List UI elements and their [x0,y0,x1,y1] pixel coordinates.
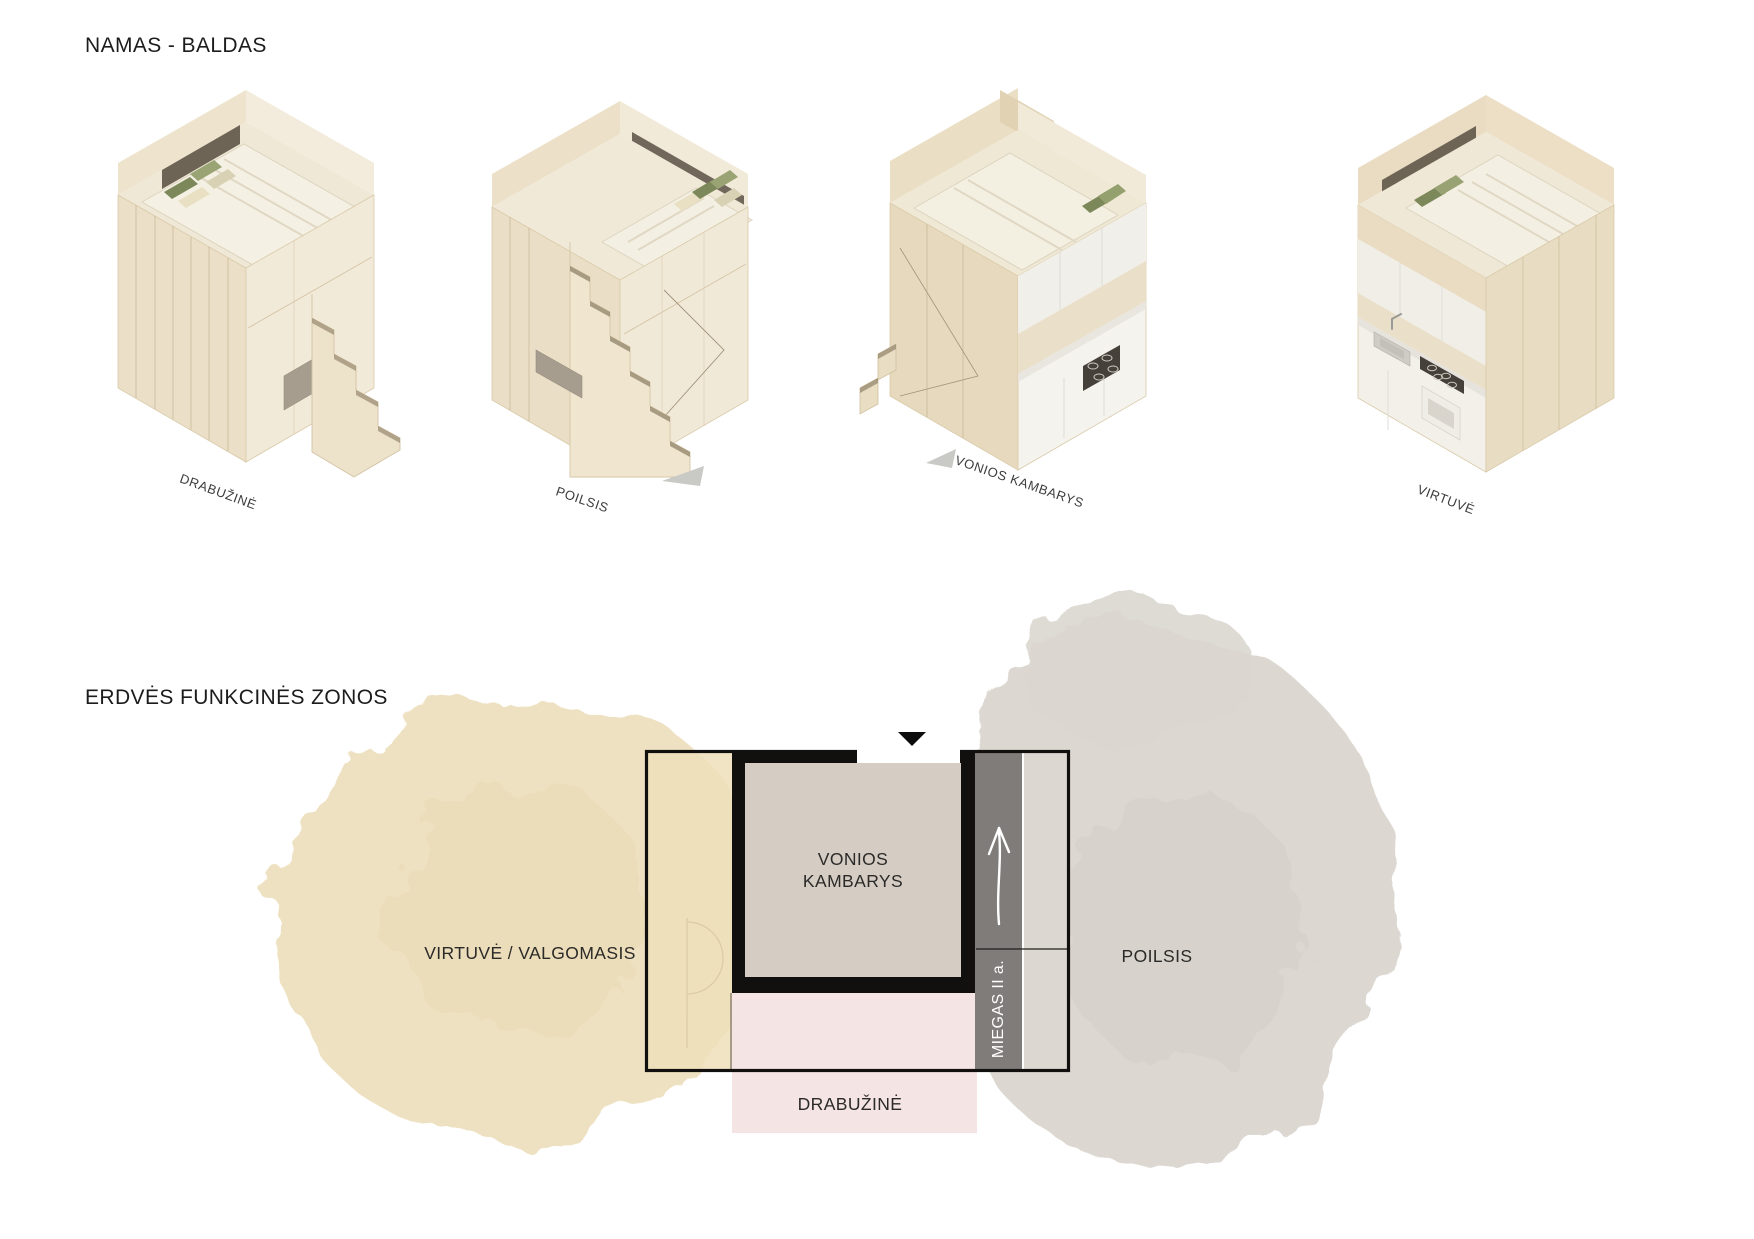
plan-label-wardrobe: DRABUŽINĖ [760,1094,940,1115]
plan-label-kitchen-dining: VIRTUVĖ / VALGOMASIS [380,943,680,964]
plan-label-bathroom: VONIOS KAMBARYS [783,848,923,892]
floor-plan-diagram [0,0,1754,1239]
plan-label-sleep-second-floor: MIEGAS II a. [990,939,1008,1079]
entrance-triangle-icon [898,732,926,746]
entrance-gap [857,745,960,763]
rest-zone-strip [1024,752,1067,1070]
plan-label-rest: POILSIS [1097,946,1217,967]
kitchen-zone-strip [648,752,732,1070]
